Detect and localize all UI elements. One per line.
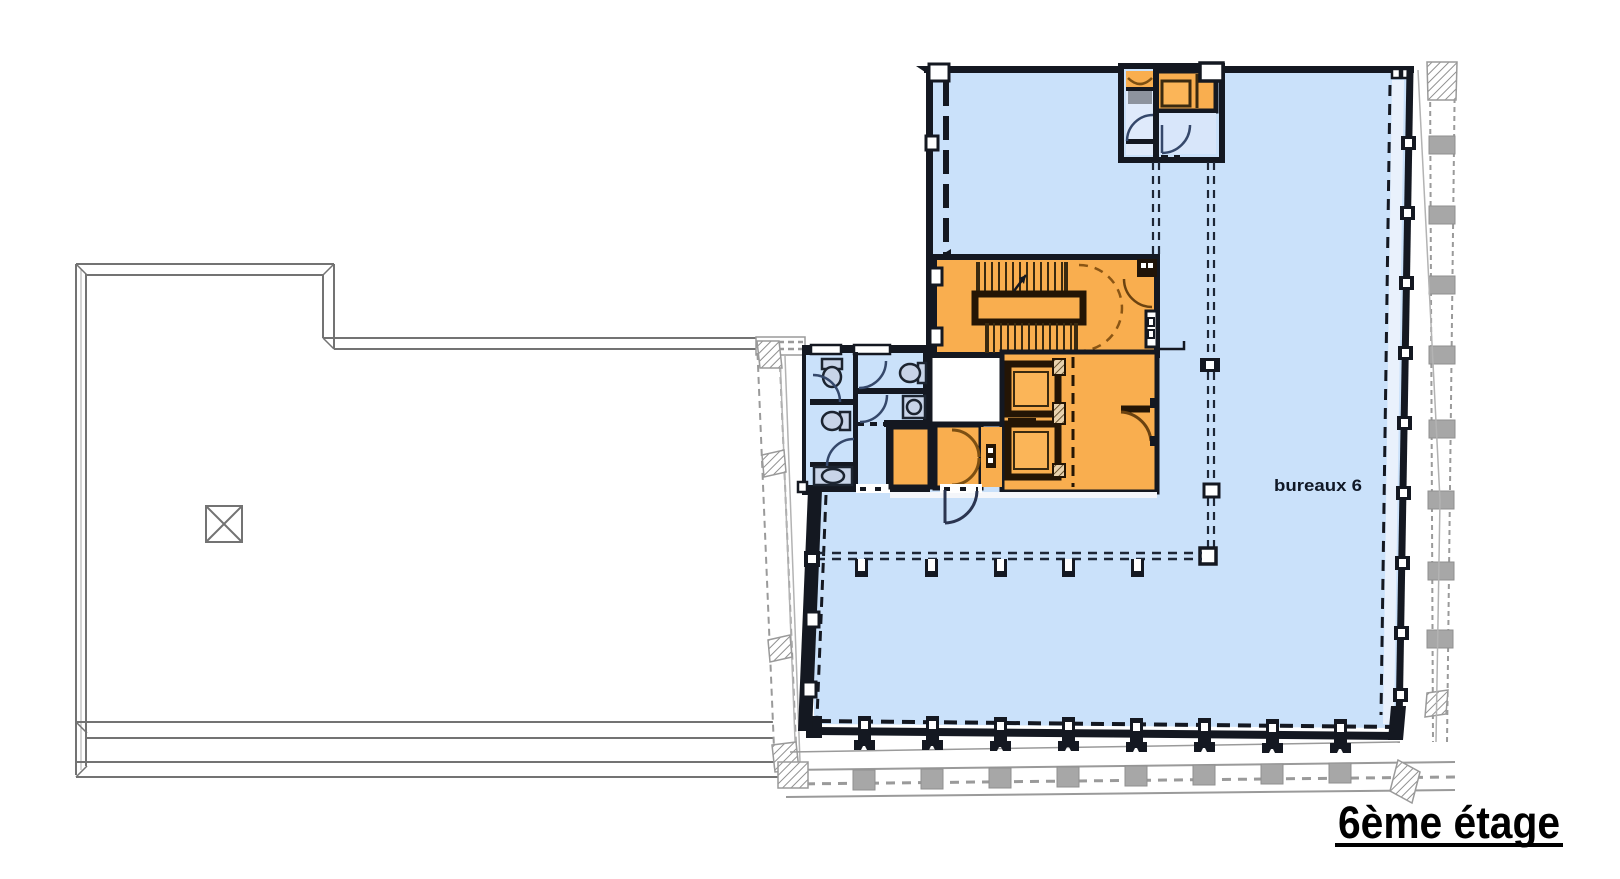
svg-text:6ème étage: 6ème étage	[1338, 797, 1560, 848]
svg-text:bureaux 6: bureaux 6	[1274, 476, 1362, 495]
